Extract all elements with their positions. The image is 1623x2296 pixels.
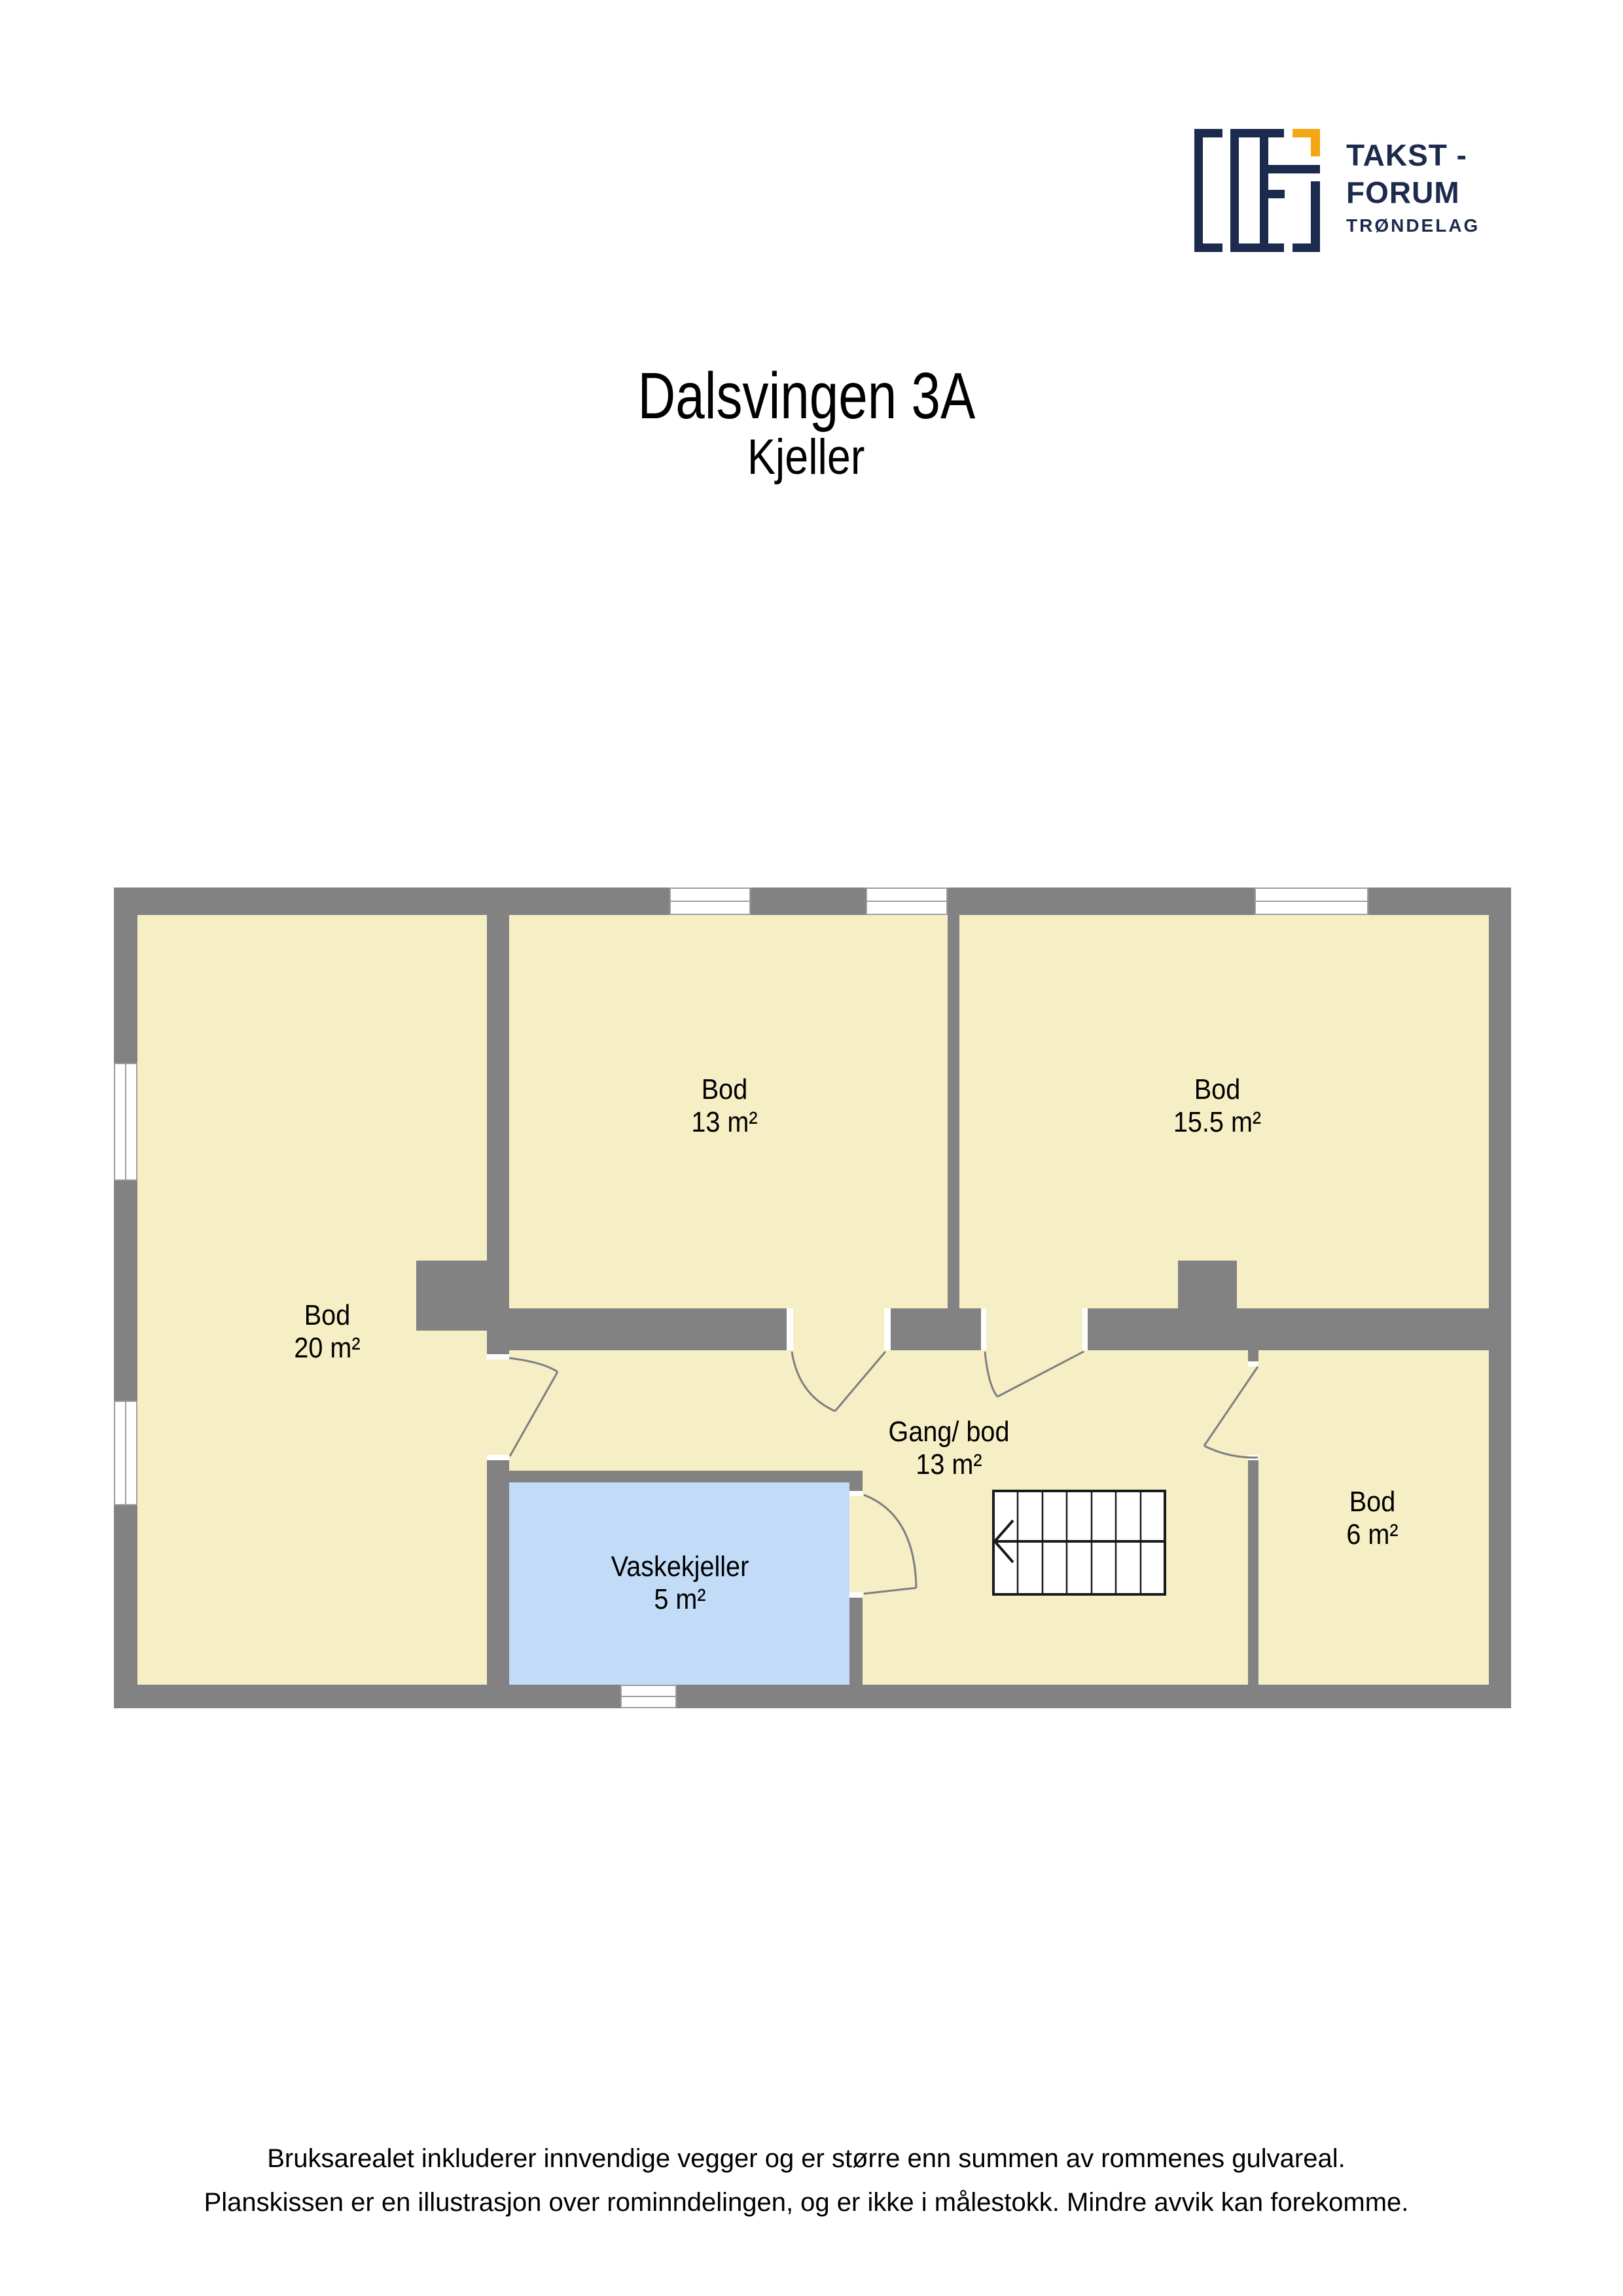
room-area: 15.5 m²	[1173, 1106, 1261, 1138]
jamb-bod13-left	[787, 1308, 793, 1350]
floorplan-page: TAKST - FORUM TRØNDELAG Dalsvingen 3A Kj…	[0, 0, 1623, 2296]
page-subtitle: Kjeller	[747, 425, 865, 490]
window-top-1	[669, 888, 751, 915]
jamb-bod155-right	[1082, 1308, 1088, 1350]
wall-mid-right	[1088, 1308, 1489, 1350]
room-area: 20 m²	[294, 1332, 360, 1364]
wall-bod6-upper	[1248, 1350, 1258, 1361]
window-bottom-1	[620, 1685, 677, 1708]
room-label-bod155: Bod 15.5 m²	[1173, 1073, 1261, 1139]
jamb-bod20-top	[487, 1354, 509, 1359]
wall-bod20-lower	[487, 1460, 509, 1685]
page-subtitle-row: Kjeller	[0, 425, 1613, 490]
footer-line-1: Bruksarealet inkluderer innvendige vegge…	[0, 2137, 1613, 2181]
wall-outer-left	[114, 888, 137, 1708]
footer-line-2: Planskissen er en illustrasjon over romi…	[0, 2181, 1613, 2225]
wall-outer-right	[1489, 888, 1511, 1708]
room-name: Vaskekjeller	[611, 1551, 749, 1583]
room-area: 5 m²	[654, 1583, 705, 1615]
wall-laundry-top	[509, 1471, 863, 1482]
brand-line-3: TRØNDELAG	[1346, 215, 1480, 236]
room-label-bod13: Bod 13 m²	[691, 1073, 757, 1139]
wall-laundry-right-lower	[849, 1598, 863, 1685]
room-area: 13 m²	[916, 1448, 982, 1480]
wall-mid-center	[891, 1308, 981, 1350]
brand-line-2: FORUM	[1346, 174, 1480, 211]
brand-line-1: TAKST -	[1346, 137, 1480, 174]
jamb-bod6-top	[1248, 1361, 1258, 1367]
footer-disclaimer: Bruksarealet inkluderer innvendige vegge…	[0, 2137, 1613, 2225]
brand-logo-text: TAKST - FORUM TRØNDELAG	[1346, 129, 1480, 236]
room-label-bod20: Bod 20 m²	[294, 1299, 360, 1365]
room-label-gang-bod: Gang/ bod 13 m²	[889, 1416, 1010, 1481]
wall-outer-bottom	[114, 1685, 1511, 1708]
window-left-2	[114, 1401, 137, 1505]
room-name: Gang/ bod	[889, 1416, 1010, 1448]
jamb-bod6-bottom	[1248, 1455, 1258, 1460]
wall-laundry-right-upper	[849, 1471, 863, 1491]
window-left-1	[114, 1063, 137, 1181]
window-top-2	[866, 888, 948, 915]
wall-stub-bod155	[1178, 1261, 1237, 1308]
room-label-vaskekjeller: Vaskekjeller 5 m²	[611, 1551, 749, 1616]
jamb-bod20-bottom	[487, 1455, 509, 1460]
room-name: Bod	[304, 1299, 350, 1331]
jamb-laundry-bottom	[849, 1592, 863, 1598]
jamb-bod155-left	[981, 1308, 986, 1350]
wall-bod13-bod155	[948, 915, 959, 1308]
jamb-laundry-top	[849, 1491, 863, 1496]
window-top-3	[1255, 888, 1368, 915]
room-name: Bod	[1349, 1486, 1395, 1518]
brand-logo-icon	[1194, 129, 1320, 252]
room-area: 13 m²	[691, 1106, 757, 1138]
floor-plan: Bod 20 m² Bod 13 m² Bod 15.5 m² Gang/ bo…	[114, 888, 1511, 1708]
room-label-bod6: Bod 6 m²	[1346, 1486, 1398, 1551]
wall-bod6-lower	[1248, 1460, 1258, 1685]
room-name: Bod	[1194, 1073, 1240, 1105]
wall-mid-left	[509, 1308, 787, 1350]
wall-stub-bod20	[416, 1261, 509, 1331]
room-name: Bod	[702, 1073, 747, 1105]
jamb-bod13-right	[884, 1308, 891, 1350]
brand-logo: TAKST - FORUM TRØNDELAG	[1194, 129, 1480, 252]
room-area: 6 m²	[1346, 1518, 1398, 1551]
